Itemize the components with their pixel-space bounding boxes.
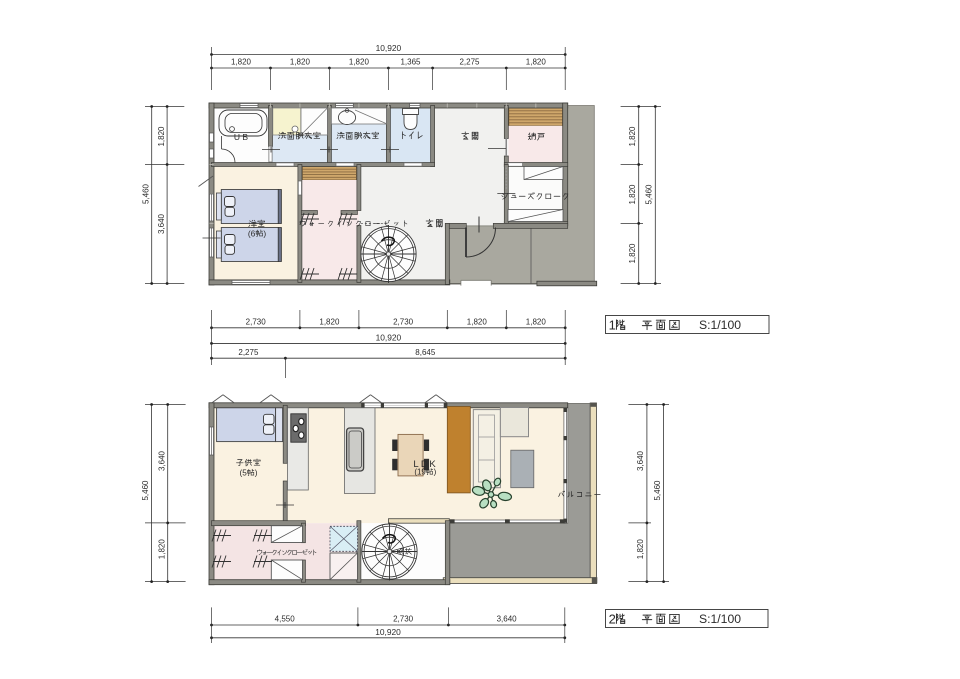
svg-text:5,460: 5,460 [141,183,150,204]
svg-text:1,820: 1,820 [628,184,637,205]
svg-text:1: 1 [609,318,616,333]
svg-text:2,275: 2,275 [459,58,480,67]
svg-text:10,920: 10,920 [376,43,402,53]
svg-text:1,820: 1,820 [231,58,252,67]
svg-text:): ) [263,228,266,238]
svg-text:1,820: 1,820 [636,539,645,560]
svg-text:5: 5 [242,469,247,478]
svg-text:6: 6 [251,228,256,238]
svg-text:1,820: 1,820 [526,58,547,67]
svg-text:): ) [434,468,437,477]
svg-text:1,820: 1,820 [467,317,488,326]
svg-text:1,820: 1,820 [319,317,340,326]
svg-text:3,640: 3,640 [636,450,645,471]
svg-text:1,820: 1,820 [157,126,166,147]
svg-text:2,730: 2,730 [246,317,267,326]
svg-text:1,820: 1,820 [157,539,166,560]
svg-text:): ) [255,469,258,478]
svg-text:4,550: 4,550 [275,615,296,624]
svg-text:10,920: 10,920 [375,627,401,637]
svg-text:2,275: 2,275 [238,348,259,357]
svg-text:3,640: 3,640 [157,213,166,234]
svg-text:10,920: 10,920 [376,332,402,342]
svg-text:5,460: 5,460 [653,480,662,501]
svg-text:5,460: 5,460 [141,480,150,501]
svg-text:2: 2 [609,612,616,627]
svg-text:2,730: 2,730 [393,615,414,624]
svg-text:S:1/100: S:1/100 [699,318,741,332]
svg-text:3,640: 3,640 [157,450,166,471]
svg-text:9: 9 [421,468,426,477]
svg-text:1,365: 1,365 [400,58,421,67]
svg-text:5,460: 5,460 [645,184,654,205]
svg-text:2,730: 2,730 [393,317,414,326]
svg-text:1,820: 1,820 [349,58,370,67]
svg-text:1,820: 1,820 [290,58,311,67]
svg-text:3,640: 3,640 [497,615,518,624]
svg-text:1,820: 1,820 [628,243,637,264]
svg-text:8,645: 8,645 [415,348,436,357]
svg-text:1,820: 1,820 [526,317,547,326]
svg-text:S:1/100: S:1/100 [699,612,741,626]
svg-text:U B: U B [234,132,249,142]
svg-text:1,820: 1,820 [628,126,637,147]
